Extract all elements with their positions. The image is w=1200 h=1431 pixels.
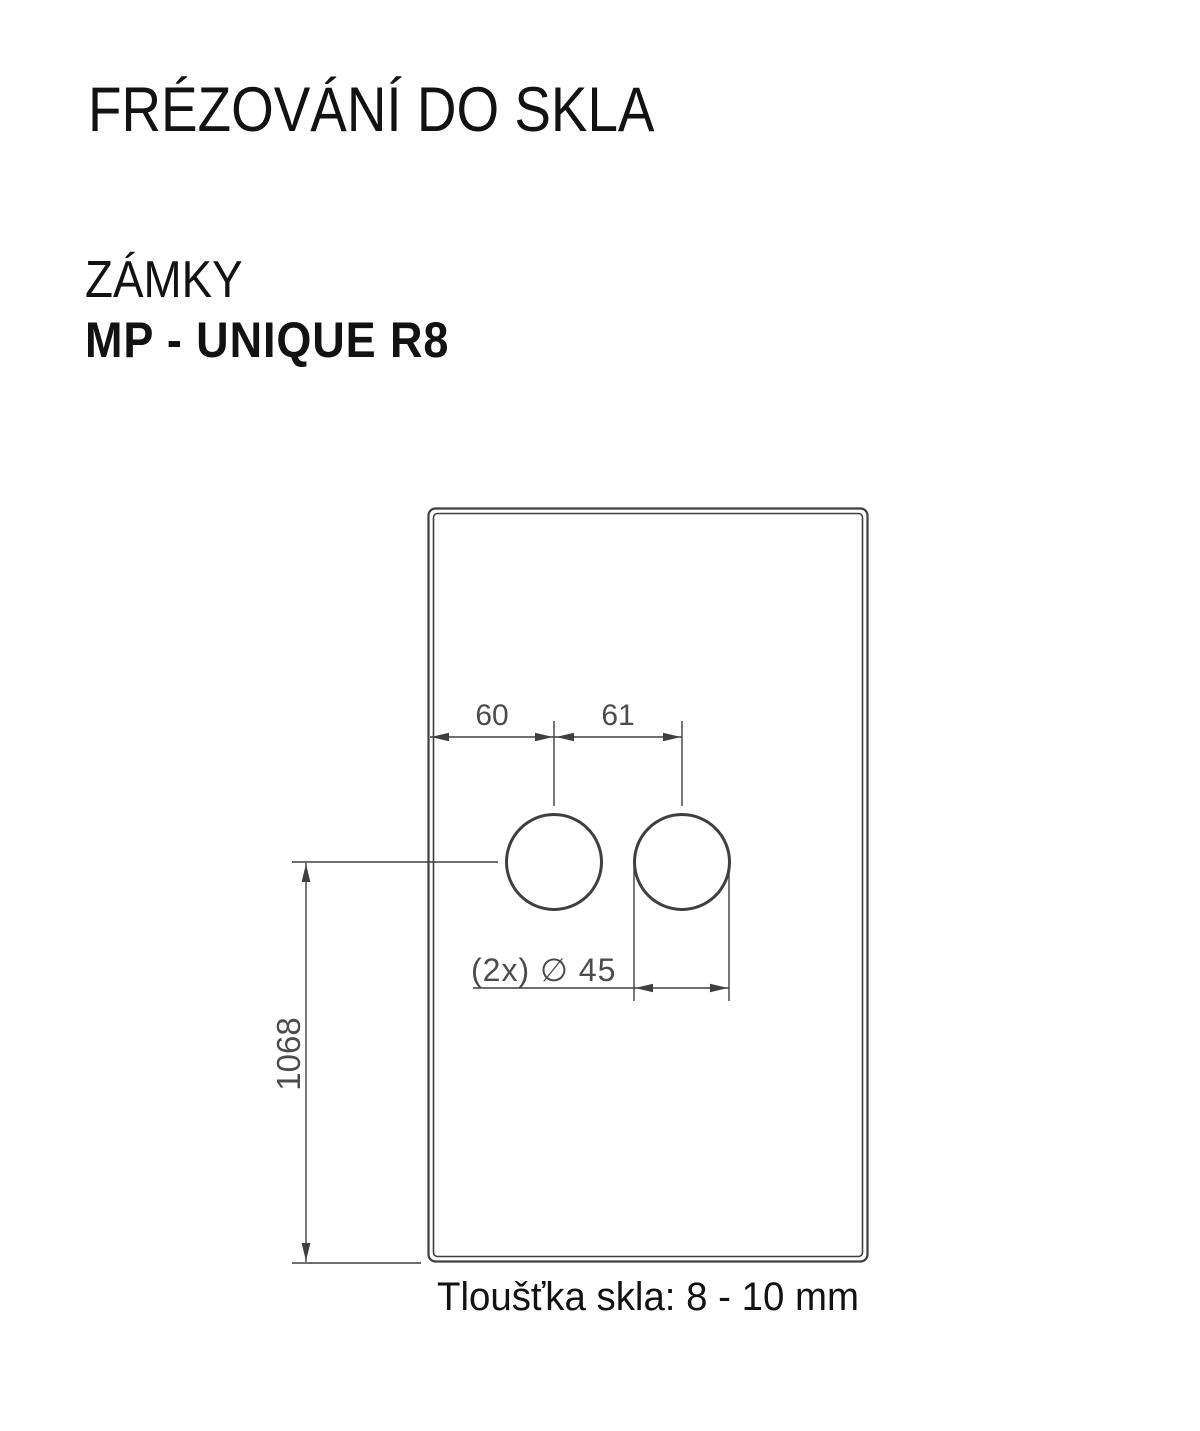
dim-61-label: 61 bbox=[554, 699, 682, 733]
dim-diameter-label: (2x) ∅ 45 bbox=[471, 951, 616, 989]
page: FRÉZOVÁNÍ DO SKLA ZÁMKY MP - UNIQUE R8 bbox=[0, 0, 1200, 1431]
dim-60-61-lines bbox=[430, 721, 682, 806]
hole-right bbox=[635, 815, 730, 910]
glass-panel-outline bbox=[429, 509, 868, 1262]
hole-left bbox=[507, 815, 602, 910]
dim-60-label: 60 bbox=[430, 699, 554, 733]
dim-1068-lines bbox=[292, 862, 498, 1263]
glass-thickness-note: Tloušťka skla: 8 - 10 mm bbox=[437, 1275, 859, 1320]
dim-1068-label: 1068 bbox=[270, 1017, 308, 1090]
